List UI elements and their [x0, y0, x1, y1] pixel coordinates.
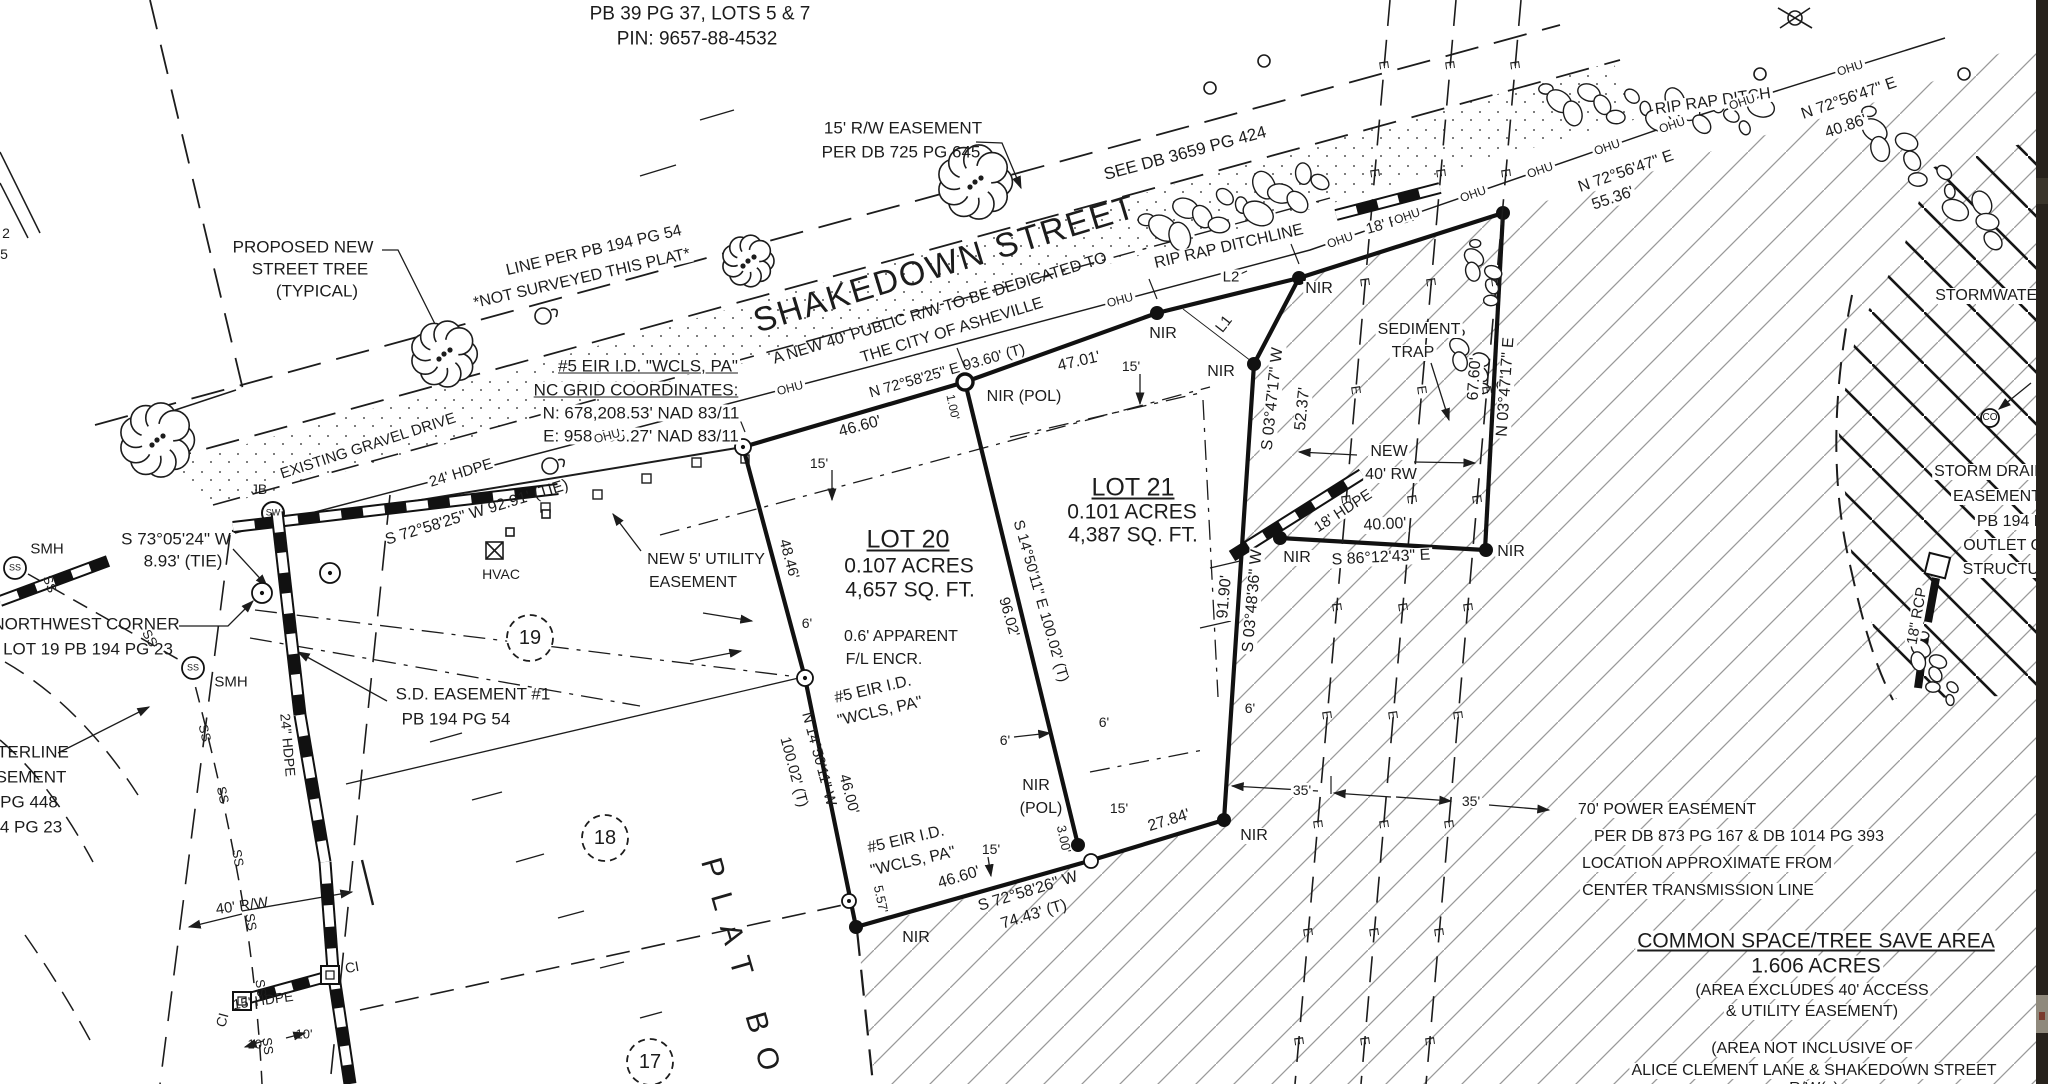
screenshot-edge-strip — [2036, 0, 2048, 1084]
map-label: 4 PG 23 — [0, 819, 62, 836]
map-label: SS — [230, 848, 246, 867]
map-label: 70' POWER EASEMENT — [1576, 802, 1758, 818]
map-label: 2 — [2, 226, 10, 240]
map-label: CI — [344, 959, 360, 975]
map-label: SMH — [30, 542, 63, 557]
map-label: (TYPICAL) — [276, 283, 358, 300]
map-label: SS — [260, 1037, 275, 1056]
electric-line-mark: E — [1480, 385, 1494, 395]
map-label: NIR — [1303, 281, 1335, 297]
map-label: PB 39 PG 37, LOTS 5 & 7 — [590, 5, 811, 24]
map-label: PER DB 725 PG 645 — [822, 144, 981, 161]
map-label: E: 958,485.27' NAD 83/11 — [541, 428, 741, 445]
map-label: NEW 5' UTILITY — [647, 552, 765, 568]
electric-line-mark: E — [1349, 385, 1363, 395]
map-label: SS — [197, 723, 214, 743]
electric-line-mark: E — [1508, 60, 1522, 70]
electric-line-mark: E — [1377, 819, 1391, 829]
electric-line-mark: E — [1396, 602, 1410, 612]
map-label: NIR — [1205, 364, 1237, 380]
map-label: 10' — [296, 1028, 313, 1041]
electric-line-mark: E — [1377, 60, 1391, 70]
map-label: SMH — [214, 675, 247, 690]
tree-symbol — [121, 403, 195, 477]
map-label: STREET TREE — [252, 261, 369, 278]
map-label: (AREA NOT INCLUSIVE OF — [1709, 1041, 1915, 1057]
map-label: STORM DRAIN — [1932, 464, 2048, 480]
electric-line-mark: E — [1367, 927, 1381, 937]
map-label: 40.00' — [1361, 516, 1409, 534]
map-label: HVAC — [482, 567, 520, 581]
map-label: TERLINE — [0, 744, 69, 761]
map-label: F/L ENCR. — [846, 652, 923, 668]
map-label: SEDIMENT — [1376, 322, 1463, 338]
electric-line-mark: E — [1423, 1035, 1437, 1045]
map-label: NEW — [1368, 444, 1409, 460]
map-label: 4,387 SQ. FT. — [1068, 525, 1198, 546]
map-label: NIR — [1495, 544, 1527, 560]
map-label: NIR — [1238, 828, 1270, 844]
map-label: 15' — [1122, 359, 1140, 373]
tree-symbol — [412, 321, 477, 387]
map-label: PROPOSED NEW — [233, 239, 374, 256]
map-label: SS — [253, 979, 268, 998]
map-label: EASEMENT — [649, 575, 737, 591]
map-label: SS — [187, 664, 199, 673]
electric-line-mark: E — [1405, 493, 1419, 503]
map-label: 67.60' — [1465, 355, 1484, 403]
map-label: 15' — [982, 842, 1000, 856]
map-label: 5 — [0, 247, 8, 261]
map-label: S 73°05'24" W — [121, 531, 231, 548]
map-label: CO — [1983, 413, 1998, 423]
electric-line-mark: E — [1339, 493, 1353, 503]
map-label: 6' — [1099, 715, 1109, 729]
map-label: 6' — [802, 616, 812, 630]
lot-number: 17 — [639, 1052, 661, 1072]
electric-line-mark: E — [1301, 927, 1315, 937]
map-label: NIR (POL) — [985, 389, 1064, 405]
map-label: OUTLET CONTROL — [1961, 538, 2048, 554]
map-label: SW — [266, 509, 281, 518]
map-label: TRAP — [1390, 345, 1437, 361]
map-label: 4,657 SQ. FT. — [845, 580, 975, 601]
map-label: S.D. EASEMENT #1 — [396, 686, 551, 703]
electric-line-mark: E — [1424, 277, 1438, 287]
map-label: SS — [215, 785, 231, 805]
map-label: JB — [251, 482, 267, 496]
electric-line-mark: E — [1442, 819, 1456, 829]
map-label: NC GRID COORDINATES: — [532, 382, 741, 399]
electric-line-mark: E — [1415, 385, 1429, 395]
map-label: PB 194 PG 54 — [402, 711, 511, 728]
map-label: 15' R/W EASEMENT — [824, 120, 982, 137]
electric-line-mark: E — [1470, 493, 1484, 503]
map-label: PIN: 9657-88-4532 — [617, 30, 778, 49]
lot-number: 19 — [519, 628, 541, 648]
map-label: SEMENT — [0, 769, 66, 786]
map-label: NIR — [902, 930, 930, 946]
map-label: & UTILITY EASEMENT) — [1724, 1004, 1900, 1020]
map-label: #5 EIR I.D. "WCLS, PA" — [556, 358, 740, 375]
map-label: 15' — [1110, 801, 1128, 815]
map-label: NIR — [1281, 550, 1313, 566]
map-label: NIR — [1022, 778, 1050, 794]
map-label: 8.93' (TIE) — [144, 553, 223, 570]
map-label: 6' — [1243, 701, 1257, 715]
electric-line-mark: E — [1461, 602, 1475, 612]
map-label: N: 678,208.53' NAD 83/11 — [541, 405, 742, 422]
electric-line-mark: E — [1358, 277, 1372, 287]
map-label: LOT 21 — [1092, 476, 1175, 501]
map-label: 0.107 ACRES — [844, 556, 974, 577]
map-label: 15' — [810, 456, 828, 470]
electric-line-mark: E — [1311, 819, 1325, 829]
map-label: LOT 20 — [867, 528, 950, 553]
map-label: NIR — [1147, 326, 1179, 342]
map-label: (POL) — [1020, 801, 1063, 817]
lot-number: 18 — [594, 828, 616, 848]
map-label: PER DB 873 PG 167 & DB 1014 PG 393 — [1592, 829, 1886, 845]
map-label: CENTER TRANSMISSION LINE — [1580, 883, 1816, 899]
map-label: LOCATION APPROXIMATE FROM — [1580, 856, 1834, 872]
map-label: 6' — [1000, 733, 1010, 747]
map-label: SS — [9, 564, 21, 573]
electric-line-mark: E — [1330, 602, 1344, 612]
map-label: 35' — [1291, 783, 1313, 797]
map-label: (AREA EXCLUDES 40' ACCESS — [1693, 983, 1930, 999]
electric-line-mark: E — [1432, 927, 1446, 937]
tree-symbol — [723, 235, 774, 287]
map-label: L2 — [1221, 270, 1242, 285]
map-label: 1.606 ACRES — [1749, 956, 1883, 977]
map-label: EASEMENT — [1951, 489, 2043, 505]
map-label: PG 448 — [0, 794, 58, 811]
electric-line-mark: E — [1489, 277, 1503, 287]
electric-line-mark: E — [1292, 1035, 1306, 1045]
electric-line-mark: E — [1358, 1035, 1372, 1045]
map-label: 40' RW — [1363, 467, 1419, 483]
map-label: COMMON SPACE/TREE SAVE AREA — [1635, 931, 1996, 952]
plat-map: PB 39 PG 37, LOTS 5 & 7PIN: 9657-88-4532… — [0, 0, 2048, 1084]
map-label: STRUCTURE — [1961, 562, 2048, 578]
map-label: SS — [243, 912, 259, 931]
map-label: 0.101 ACRES — [1067, 502, 1197, 523]
map-label: 0.6' APPARENT — [844, 629, 958, 645]
map-label: ALICE CLEMENT LANE & SHAKEDOWN STREET — [1629, 1063, 1998, 1079]
map-label: 35' — [1460, 794, 1482, 808]
map-label: STORMWATER — [1933, 288, 2048, 304]
electric-line-mark: E — [1443, 60, 1457, 70]
